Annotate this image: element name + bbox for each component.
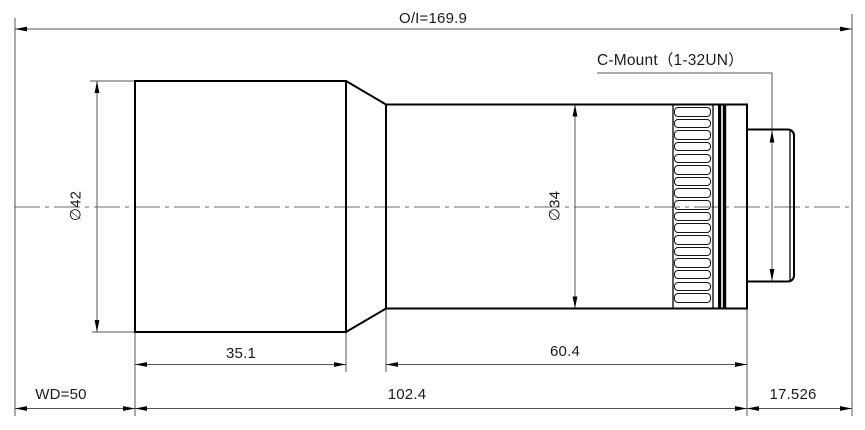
dim-label-body-length: 102.4 bbox=[388, 387, 427, 402]
dimension-arrowheads bbox=[15, 27, 852, 411]
dim-label-object-to-image: O/I=169.9 bbox=[399, 11, 467, 26]
dim-label-working-distance: WD=50 bbox=[35, 387, 86, 402]
dimension-lines bbox=[15, 29, 852, 409]
rear-thread-section bbox=[747, 130, 794, 282]
dim-label-flange-distance: 17.526 bbox=[769, 387, 816, 402]
dim-label-front-diameter: ∅42 bbox=[69, 191, 84, 221]
dim-label-front-length: 35.1 bbox=[226, 346, 256, 361]
taper-bottom bbox=[346, 309, 386, 333]
taper-top bbox=[346, 81, 386, 105]
mount-label: C-Mount（1-32UN） bbox=[597, 53, 744, 68]
extension-lines bbox=[15, 14, 852, 416]
lock-ring-2 bbox=[723, 106, 726, 308]
lens-technical-drawing: O/I=169.9 C-Mount（1-32UN） ∅42 ∅34 35.1 6… bbox=[0, 0, 865, 430]
dim-label-mid-diameter: ∅34 bbox=[548, 191, 563, 221]
lock-ring-1 bbox=[718, 106, 721, 308]
dim-label-mid-length: 60.4 bbox=[550, 344, 580, 359]
